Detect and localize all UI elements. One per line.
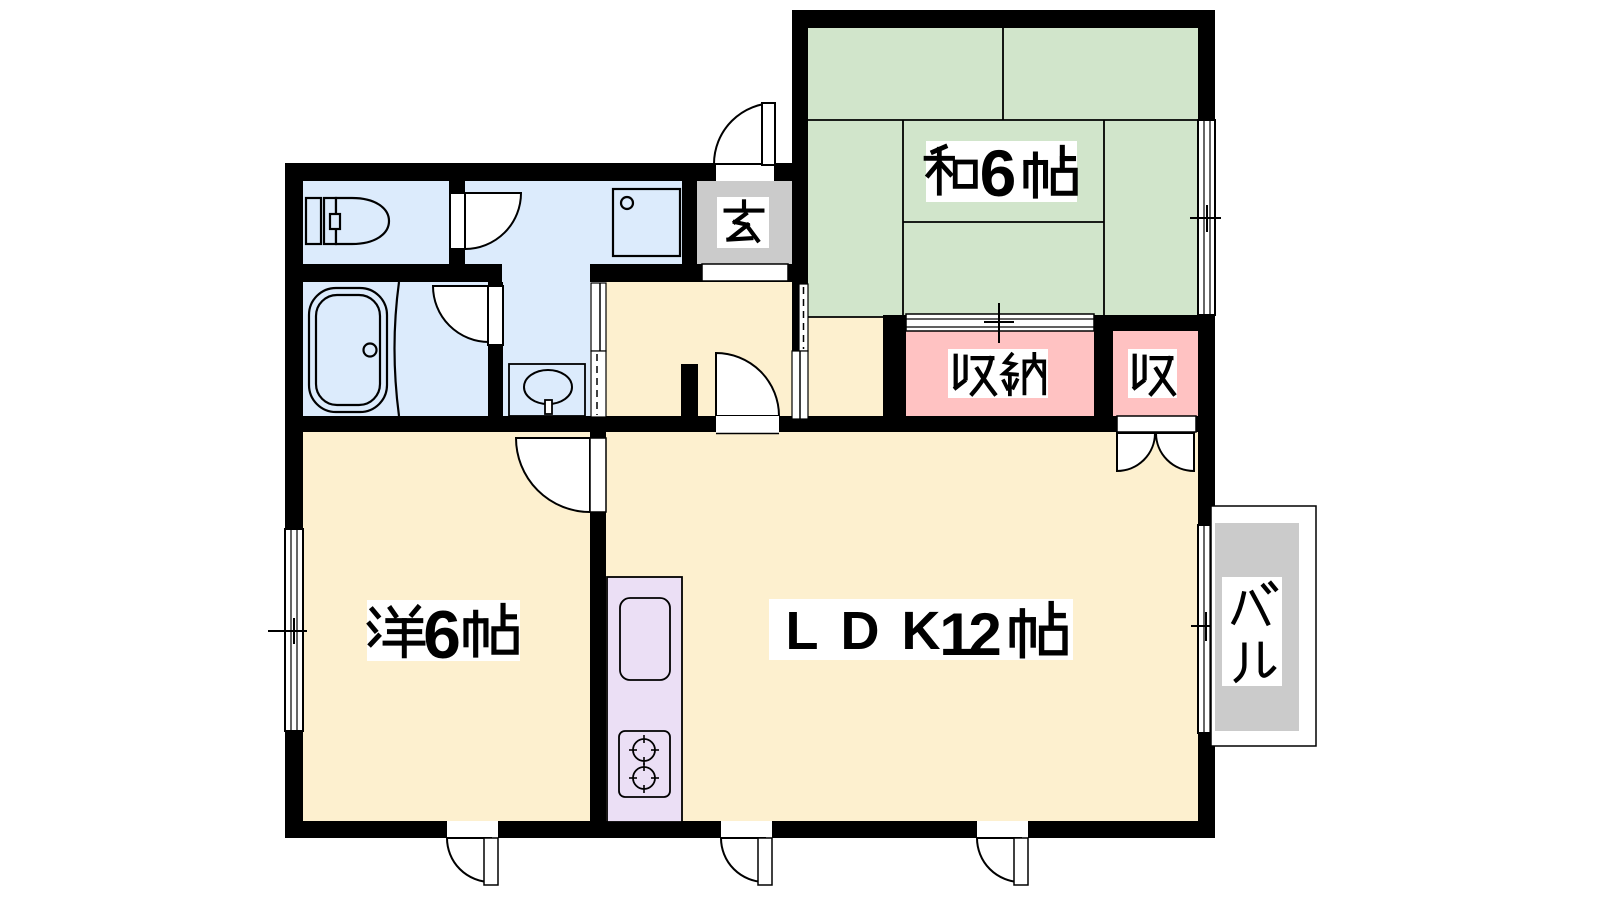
svg-text:D: D xyxy=(841,601,880,661)
svg-text:6: 6 xyxy=(423,597,461,673)
svg-text:2: 2 xyxy=(968,601,1001,668)
svg-text:6: 6 xyxy=(980,136,1017,210)
svg-text:K: K xyxy=(902,601,941,661)
svg-text:L: L xyxy=(786,601,819,661)
